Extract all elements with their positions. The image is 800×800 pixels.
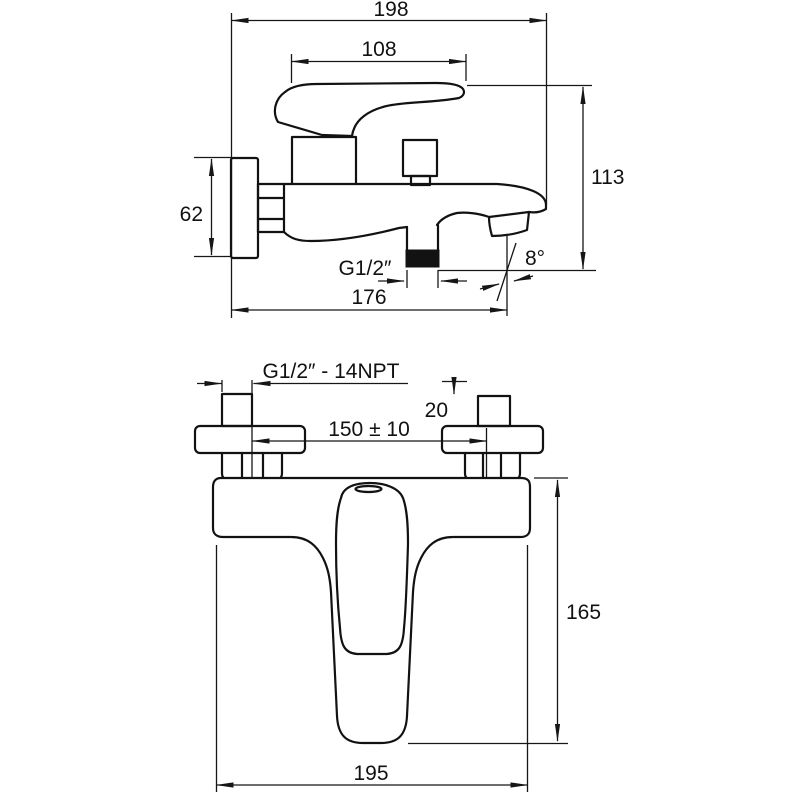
front-view: G1/2″ - 14NPT 20 150 ± 10 165 195 — [195, 360, 601, 792]
dim-label-198: 198 — [373, 0, 408, 21]
cartridge-housing — [292, 137, 356, 183]
mounting-nut — [258, 184, 284, 232]
lever-handle — [275, 83, 464, 136]
left-supply-stub — [222, 394, 252, 426]
aerator — [489, 212, 529, 236]
side-view-faucet-outline — [231, 83, 546, 267]
dim-label-connection-thread: G1/2″ - 14NPT — [263, 360, 400, 383]
angle-arrow-left — [480, 284, 499, 289]
dim-label-195: 195 — [353, 762, 388, 785]
dim-label-113: 113 — [591, 166, 624, 189]
front-view-faucet-outline — [195, 394, 543, 743]
side-view: 198 108 113 62 176 G1/2″ 8° — [180, 0, 625, 318]
body-bottom-edge — [284, 227, 407, 241]
dim-label-outlet-thread: G1/2″ — [339, 257, 393, 280]
dim-label-20: 20 — [425, 399, 448, 422]
right-supply-stub — [478, 396, 510, 426]
dim-label-176: 176 — [351, 286, 386, 309]
handle-front — [336, 483, 408, 654]
right-escutcheon — [442, 426, 543, 453]
dim-label-150: 150 ± 10 — [328, 418, 410, 441]
spout-top-edge — [284, 184, 546, 212]
spout-underside — [437, 213, 489, 225]
dim-label-62: 62 — [180, 203, 203, 226]
angle-arrow-right — [514, 276, 533, 281]
dim-label-angle: 8° — [525, 247, 545, 270]
outlet-thread-black — [406, 250, 439, 267]
dim-label-108: 108 — [361, 38, 396, 61]
diverter-knob — [403, 140, 437, 185]
technical-drawing-page: 198 108 113 62 176 G1/2″ 8° — [0, 0, 800, 800]
wall-plate — [231, 158, 258, 258]
dim-label-165: 165 — [566, 601, 601, 624]
shower-outlet-tail — [406, 225, 439, 267]
faucet-dimension-drawing: 198 108 113 62 176 G1/2″ 8° — [0, 0, 800, 800]
front-view-labels: G1/2″ - 14NPT 20 150 ± 10 165 195 — [263, 360, 602, 785]
left-escutcheon — [195, 426, 305, 453]
